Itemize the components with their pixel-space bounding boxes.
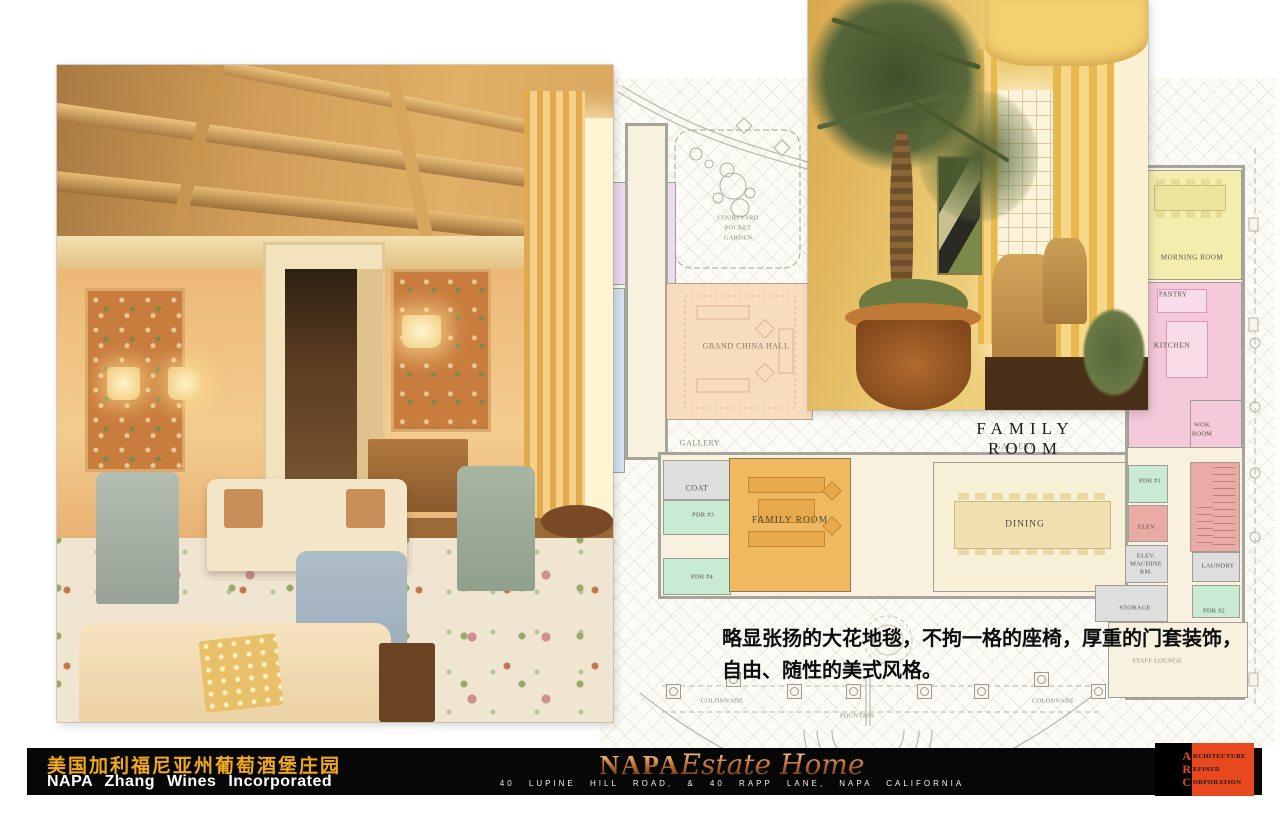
arc-logo-black-column: A R C bbox=[1155, 743, 1192, 796]
caption-line-2: 自由、随性的美式风格。 bbox=[722, 654, 1242, 686]
label-laundry: LAUNDRY bbox=[1202, 562, 1235, 571]
footer-address: 40 LUPINE HILL ROAD, & 40 RAPP LANE, NAP… bbox=[472, 779, 992, 788]
arc-word-architecture: RCHITECTURE bbox=[1192, 750, 1254, 763]
label-kitchen: KITCHEN bbox=[1154, 341, 1190, 350]
armchair-right bbox=[457, 466, 535, 591]
living-room-photo bbox=[57, 65, 613, 722]
sofa-pillow bbox=[224, 489, 263, 528]
label-pdr2: PDR #2 bbox=[1203, 607, 1225, 616]
table-lamp bbox=[107, 367, 140, 400]
footer-company-name: NAPA Zhang Wines Incorporated bbox=[47, 773, 332, 791]
column-symbol bbox=[974, 684, 989, 699]
room-morning bbox=[1147, 170, 1242, 280]
arc-letter-c: C bbox=[1182, 776, 1192, 789]
label-courtyard-1: COURTYARD bbox=[717, 214, 758, 223]
label-colonnade-right: COLONNADE bbox=[1032, 697, 1074, 706]
label-coat: COAT bbox=[686, 484, 709, 493]
arc-logo: A R C RCHITECTURE EFINED ORPORATION bbox=[1155, 743, 1254, 796]
presentation-board: GRAND CHINA HALL COURTYARD POCKET GARDEN bbox=[0, 0, 1280, 815]
label-wok-1: WOK bbox=[1194, 421, 1210, 430]
plan-title: FAMILY ROOM bbox=[938, 419, 1113, 459]
room-grand-china-hall bbox=[666, 283, 813, 420]
side-table-front bbox=[379, 643, 435, 722]
arc-logo-orange-panel: RCHITECTURE EFINED ORPORATION bbox=[1192, 743, 1254, 796]
label-morning-room: MORNING ROOM bbox=[1161, 254, 1223, 263]
label-pdr4: PDR #4 bbox=[691, 573, 713, 582]
room-west-terrace bbox=[612, 288, 625, 473]
palm-canopy bbox=[896, 66, 1059, 246]
gilded-chair bbox=[1043, 238, 1087, 324]
arc-word-corporation: ORPORATION bbox=[1192, 776, 1254, 789]
label-storage: STORAGE bbox=[1119, 604, 1150, 613]
label-colonnade-left: COLONNADE bbox=[701, 697, 743, 706]
door-opening bbox=[285, 269, 357, 499]
label-pantry: PANTRY bbox=[1159, 291, 1187, 300]
column-symbol bbox=[917, 684, 932, 699]
caption-text: 略显张扬的大花地毯，不拘一格的座椅，厚重的门套装饰， 自由、随性的美式风格。 bbox=[722, 622, 1242, 686]
armchair-left bbox=[96, 472, 179, 603]
gold-pillow bbox=[198, 633, 283, 713]
label-courtyard-3: GARDEN bbox=[724, 234, 752, 243]
label-grand-china-hall: GRAND CHINA HALL bbox=[703, 342, 790, 351]
label-pdr3: PDR #3 bbox=[692, 511, 714, 520]
table-lamp bbox=[402, 315, 441, 348]
label-wok-2: ROOM bbox=[1192, 430, 1212, 439]
brand-estate-home: Estate Home bbox=[681, 748, 865, 781]
footer-brand: NAPAEstate Home bbox=[472, 748, 992, 781]
palm-room-photo bbox=[808, 0, 1148, 410]
label-elev-machine-3: RM. bbox=[1140, 568, 1152, 577]
column-symbol bbox=[666, 684, 681, 699]
chinoiserie-panel-right bbox=[391, 269, 492, 433]
room-stairs bbox=[1190, 462, 1240, 552]
west-corridor bbox=[625, 123, 668, 460]
column-symbol bbox=[787, 684, 802, 699]
column-symbol bbox=[1091, 684, 1106, 699]
label-family-room: FAMILY ROOM bbox=[752, 517, 828, 526]
brand-napa: NAPA bbox=[600, 750, 681, 780]
caption-line-1: 略显张扬的大花地毯，不拘一格的座椅，厚重的门套装饰， bbox=[722, 622, 1242, 654]
column-symbol bbox=[846, 684, 861, 699]
round-table-right bbox=[541, 505, 613, 538]
urn bbox=[856, 320, 972, 410]
label-courtyard-2: POCKET bbox=[725, 224, 751, 233]
boxwood-bush bbox=[1073, 295, 1148, 410]
table-lamp bbox=[168, 367, 201, 400]
label-elev: ELEV. bbox=[1138, 523, 1156, 532]
label-dining: DINING bbox=[1005, 521, 1045, 530]
arc-word-refined: EFINED bbox=[1192, 763, 1254, 776]
label-fountain: FOUNTAIN bbox=[840, 712, 874, 721]
label-pdr1: PDR #1 bbox=[1139, 477, 1161, 486]
footer-bar: 美国加利福尼亚州葡萄酒堡庄园 NAPA Zhang Wines Incorpor… bbox=[27, 748, 1262, 795]
sofa-pillow bbox=[346, 489, 385, 528]
label-gallery-left: GALLERY bbox=[680, 439, 720, 448]
room-coat bbox=[663, 460, 731, 500]
